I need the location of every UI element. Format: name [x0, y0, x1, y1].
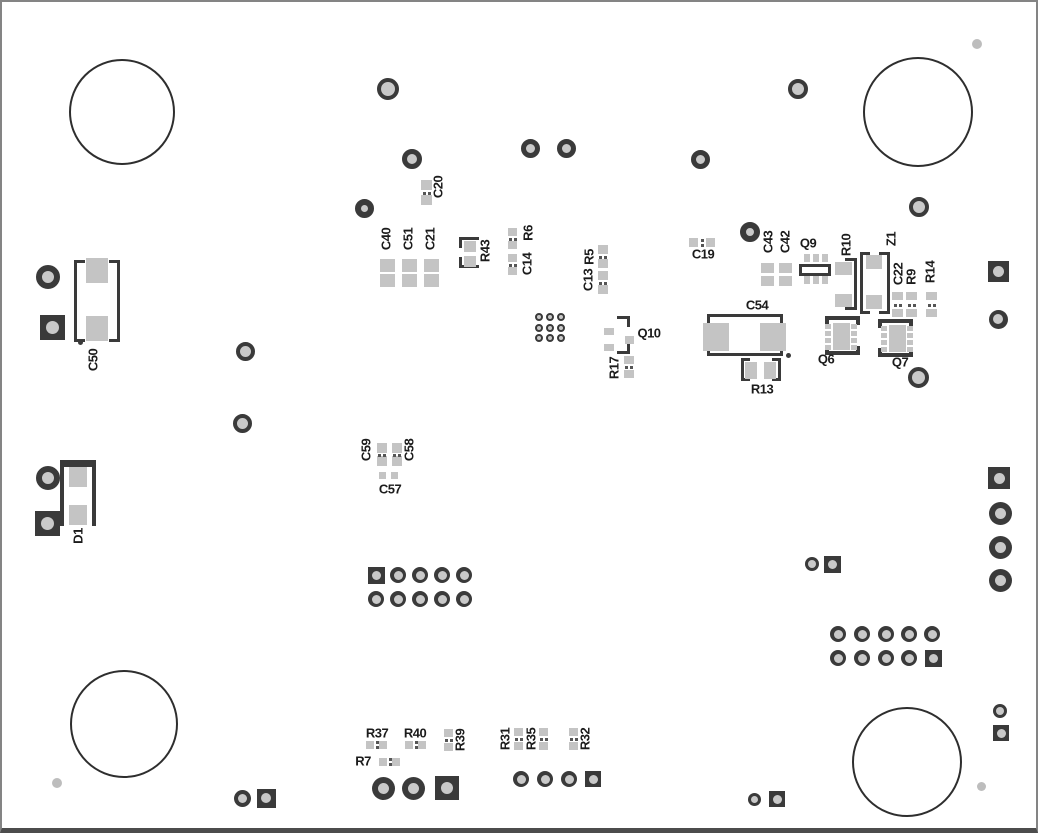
via [546, 324, 554, 332]
component-R17-pad [624, 370, 634, 378]
component-R7-pad [392, 758, 400, 766]
refdes-label-R35: R35 [525, 728, 538, 750]
R10-bracket [854, 258, 857, 310]
through-hole-pad [993, 725, 1009, 741]
Q7-bracket [878, 319, 913, 323]
R10-bracket [845, 258, 857, 261]
via [557, 334, 565, 342]
pad-hole [41, 517, 54, 530]
refdes-label-C59: C59 [360, 439, 373, 461]
through-hole-pad [748, 793, 761, 806]
pad-hole [808, 560, 816, 568]
component-R7-pad [379, 758, 387, 766]
fiducial-dot [972, 39, 982, 49]
mounting-hole [70, 670, 178, 778]
via [535, 324, 543, 332]
pad-hole [928, 630, 937, 639]
C54-bracket [707, 353, 783, 356]
component-R6-pad [508, 228, 517, 236]
refdes-label-R40: R40 [404, 727, 426, 740]
via [557, 313, 565, 321]
component-R9-pad [906, 309, 917, 317]
via [402, 149, 422, 169]
via [233, 414, 252, 433]
component-D1-pad [69, 467, 87, 487]
pad-hole [460, 595, 469, 604]
refdes-label-Q6: Q6 [818, 353, 834, 366]
refdes-label-R39: R39 [454, 729, 467, 751]
component-C43-pad [761, 276, 774, 286]
pad-hole [372, 571, 381, 580]
via [788, 79, 808, 99]
refdes-label-C57: C57 [379, 483, 401, 496]
pad-hole [565, 775, 574, 784]
through-hole-pad [412, 567, 428, 583]
component-D1-pad [69, 505, 87, 525]
component-R37-pad [379, 741, 387, 749]
pad-hole [993, 266, 1004, 277]
pad-hole [394, 595, 403, 604]
component-R6-pad [508, 241, 517, 249]
refdes-label-R14: R14 [924, 261, 937, 283]
mounting-hole [852, 707, 962, 817]
through-hole-pad [989, 502, 1012, 525]
component-R10-pad [835, 262, 852, 275]
paste-dot [389, 758, 392, 761]
paste-dot [376, 741, 379, 744]
component-R5-pad [598, 245, 608, 254]
paste-dot [378, 454, 381, 457]
via [691, 150, 710, 169]
pad-hole [828, 560, 837, 569]
component-C57-pad [379, 472, 386, 479]
polarity-dot-C50 [78, 340, 83, 345]
through-hole-pad [412, 591, 428, 607]
Q9-pad [822, 276, 828, 284]
via [557, 324, 565, 332]
paste-dot [894, 304, 897, 307]
Q9-pad [813, 254, 819, 262]
R43-bracket [459, 257, 462, 268]
pad-hole [997, 729, 1006, 738]
pad-hole [408, 783, 419, 794]
component-C22-pad [892, 309, 903, 317]
D1-outline [60, 460, 64, 526]
through-hole-pad [585, 771, 601, 787]
via [521, 139, 540, 158]
paste-dot [630, 366, 633, 369]
Q6-pad [851, 331, 857, 336]
refdes-label-C50: C50 [87, 349, 100, 371]
refdes-label-C19: C19 [692, 248, 714, 261]
pad-hole [238, 794, 247, 803]
pad-hole [541, 775, 550, 784]
through-hole-pad [824, 556, 841, 573]
through-hole-pad [924, 626, 940, 642]
through-hole-pad [390, 591, 406, 607]
component-R35-pad [539, 728, 548, 736]
refdes-label-R10: R10 [840, 234, 853, 256]
refdes-label-R37: R37 [366, 727, 388, 740]
paste-dot [509, 238, 512, 241]
through-hole-pad [989, 310, 1008, 329]
mounting-hole [863, 57, 973, 167]
component-C58-pad [392, 443, 402, 453]
Q7-pad [881, 326, 887, 331]
Q7-pad [907, 326, 913, 331]
through-hole-pad [988, 467, 1010, 489]
pad-hole [834, 654, 843, 663]
through-hole-pad [35, 511, 60, 536]
refdes-label-Q7: Q7 [892, 356, 908, 369]
component-C58-pad [392, 456, 402, 466]
paste-dot [625, 366, 628, 369]
C50-bracket [109, 339, 120, 342]
component-R13-pad [745, 362, 757, 379]
refdes-label-C20: C20 [432, 176, 445, 198]
component-C40-pad [380, 259, 395, 272]
paste-dot [514, 264, 517, 267]
refdes-label-R32: R32 [579, 728, 592, 750]
through-hole-pad [513, 771, 529, 787]
pad-hole [882, 654, 891, 663]
via [546, 334, 554, 342]
paste-dot [701, 239, 704, 242]
component-C50-pad [86, 258, 108, 283]
through-hole-pad [372, 777, 395, 800]
paste-dot [540, 738, 543, 741]
refdes-label-Q9: Q9 [800, 237, 816, 250]
paste-dot [415, 741, 418, 744]
pad-hole [994, 473, 1005, 484]
Q7-pad [907, 347, 913, 352]
refdes-label-R43: R43 [479, 240, 492, 262]
paste-dot [599, 256, 602, 259]
Q7-pad [907, 333, 913, 338]
Q7-pad [907, 340, 913, 345]
through-hole-pad [257, 789, 276, 808]
via [740, 222, 760, 242]
fiducial-dot [52, 778, 62, 788]
paste-dot [520, 738, 523, 741]
paste-dot [445, 739, 448, 742]
through-hole-pad [993, 704, 1007, 718]
pad-hole [834, 630, 843, 639]
refdes-label-C21: C21 [424, 228, 437, 250]
through-hole-pad [988, 261, 1009, 282]
paste-dot [933, 304, 936, 307]
Z1-bracket [879, 311, 890, 314]
Q9-pad [804, 254, 810, 262]
through-hole-pad [878, 650, 894, 666]
Q6-pad [825, 324, 831, 329]
through-hole-pad [901, 626, 917, 642]
polarity-dot-C54 [786, 353, 791, 358]
C50-bracket [117, 260, 120, 342]
through-hole-pad [434, 591, 450, 607]
via [535, 313, 543, 321]
R43-bracket [459, 237, 462, 248]
through-hole-pad [402, 777, 425, 800]
pad-hole [858, 654, 867, 663]
component-C59-pad [377, 443, 387, 453]
refdes-label-R9: R9 [905, 269, 918, 285]
refdes-label-C42: C42 [779, 231, 792, 253]
component-C14-pad [508, 254, 517, 262]
refdes-label-C51: C51 [402, 228, 415, 250]
refdes-label-C13: C13 [582, 269, 595, 291]
through-hole-pad [234, 790, 251, 807]
pad-hole [517, 775, 526, 784]
component-R35-pad [539, 742, 548, 750]
component-C42-pad [779, 263, 792, 273]
paste-dot [415, 746, 418, 749]
Q6-pad [825, 331, 831, 336]
paste-dot [604, 282, 607, 285]
refdes-label-R6: R6 [522, 225, 535, 241]
Q7-pad [881, 333, 887, 338]
component-R17-pad [624, 356, 634, 364]
component-C51-pad [402, 274, 417, 287]
paste-dot [389, 763, 392, 766]
refdes-label-Q10: Q10 [637, 327, 660, 340]
pad-hole [995, 575, 1006, 586]
pad-hole [261, 793, 271, 803]
component-C22-pad [892, 292, 903, 300]
Z1-bracket [860, 311, 870, 314]
pad-hole [441, 782, 453, 794]
pad-hole [751, 796, 758, 803]
pad-hole [372, 595, 381, 604]
component-R40-pad [405, 741, 413, 749]
component-R31-pad [514, 742, 523, 750]
through-hole-pad [830, 650, 846, 666]
component-R13-pad [764, 362, 776, 379]
Q9-pad [813, 276, 819, 284]
through-hole-pad [854, 650, 870, 666]
component-C57-pad [391, 472, 398, 479]
pad-hole [438, 571, 447, 580]
paste-dot [514, 238, 517, 241]
pad-hole [416, 595, 425, 604]
pad-hole [378, 783, 389, 794]
fiducial-dot [977, 782, 986, 791]
refdes-label-R7: R7 [355, 755, 371, 768]
pad-hole [394, 571, 403, 580]
via [546, 313, 554, 321]
pad-hole [995, 542, 1006, 553]
component-R9-pad [906, 292, 917, 300]
paste-dot [515, 738, 518, 741]
Q9-pad [804, 276, 810, 284]
mounting-hole [69, 59, 175, 165]
through-hole-pad [901, 650, 917, 666]
component-R5-pad [598, 259, 608, 268]
through-hole-pad [878, 626, 894, 642]
component-C54-pad [703, 323, 729, 351]
through-hole-pad [456, 591, 472, 607]
refdes-label-D1: D1 [72, 528, 85, 544]
via [355, 199, 374, 218]
Q6-body [833, 323, 850, 350]
via [908, 367, 929, 388]
component-C54-pad [760, 323, 786, 351]
component-C21-pad [424, 259, 439, 272]
R10-bracket [845, 307, 857, 310]
pad-hole [996, 707, 1004, 715]
D1-outline [92, 460, 96, 526]
paste-dot [604, 256, 607, 259]
via [377, 78, 399, 100]
refdes-label-C58: C58 [403, 439, 416, 461]
C50-bracket [74, 260, 77, 342]
Q6-pad [825, 345, 831, 350]
Q6-pad [851, 324, 857, 329]
through-hole-pad [40, 315, 65, 340]
component-C13-pad [598, 271, 608, 280]
paste-dot [908, 304, 911, 307]
via [535, 334, 543, 342]
Q6-pad [851, 338, 857, 343]
pad-hole [773, 795, 782, 804]
Z1-bracket [860, 252, 863, 314]
C50-bracket [74, 260, 85, 263]
pad-hole [905, 654, 914, 663]
refdes-label-R17: R17 [608, 357, 621, 379]
Q6-bracket [825, 316, 860, 320]
through-hole-pad [435, 776, 459, 800]
pad-hole [995, 508, 1006, 519]
pad-hole [589, 775, 598, 784]
component-R31-pad [514, 728, 523, 736]
refdes-label-C54: C54 [746, 299, 768, 312]
component-R14-pad [926, 292, 937, 300]
component-R43-pad [464, 256, 476, 267]
component-R37-pad [366, 741, 374, 749]
via [909, 197, 929, 217]
refdes-label-Z1: Z1 [885, 232, 898, 246]
Q10-corner [627, 343, 630, 354]
component-R43-pad [464, 241, 476, 252]
C54-bracket [707, 314, 783, 317]
D1-outline [60, 460, 96, 467]
Q9-pad [822, 254, 828, 262]
pad-hole [416, 571, 425, 580]
paste-dot [423, 192, 426, 195]
R43-bracket [459, 237, 479, 240]
paste-dot [545, 738, 548, 741]
component-C59-pad [377, 456, 387, 466]
Q10-corner [627, 316, 630, 327]
Q6-pad [825, 338, 831, 343]
pad-hole [858, 630, 867, 639]
paste-dot [928, 304, 931, 307]
via [557, 139, 576, 158]
component-R40-pad [418, 741, 426, 749]
pad-hole [438, 595, 447, 604]
R13-bracket [741, 358, 750, 361]
through-hole-pad [390, 567, 406, 583]
through-hole-pad [925, 650, 942, 667]
paste-dot [570, 738, 573, 741]
pad-hole [993, 314, 1003, 324]
component-Z1-pad [866, 295, 882, 309]
component-R14-pad [926, 309, 937, 317]
pad-hole [929, 654, 938, 663]
Q10-pad [604, 328, 614, 335]
component-C43-pad [761, 263, 774, 273]
paste-dot [913, 304, 916, 307]
through-hole-pad [989, 536, 1012, 559]
Q10-pad [625, 336, 634, 344]
Q7-pad [881, 347, 887, 352]
component-Z1-pad [866, 255, 882, 269]
refdes-label-R13: R13 [751, 383, 773, 396]
component-C13-pad [598, 285, 608, 294]
via [36, 466, 60, 490]
paste-dot [599, 282, 602, 285]
through-hole-pad [830, 626, 846, 642]
paste-dot [393, 454, 396, 457]
through-hole-pad [561, 771, 577, 787]
through-hole-pad [989, 569, 1012, 592]
pad-hole [460, 571, 469, 580]
Q7-body [889, 325, 906, 352]
through-hole-pad [434, 567, 450, 583]
Q10-pad [604, 344, 614, 351]
C50-bracket [109, 260, 120, 263]
refdes-label-R31: R31 [499, 728, 512, 750]
Q7-pad [881, 340, 887, 345]
through-hole-pad [805, 557, 819, 571]
through-hole-pad [537, 771, 553, 787]
refdes-label-C40: C40 [380, 228, 393, 250]
refdes-label-C14: C14 [521, 253, 534, 275]
paste-dot [376, 746, 379, 749]
component-C50-pad [86, 316, 108, 341]
Q6-pad [851, 345, 857, 350]
via [36, 265, 60, 289]
pcb-assembly-drawing: C20C40C51C21R43R6C14R5C13C19C43C42Q9R10Z… [0, 0, 1038, 833]
component-C40-pad [380, 274, 395, 287]
R13-bracket [772, 358, 781, 361]
paste-dot [899, 304, 902, 307]
pad-hole [905, 630, 914, 639]
component-R10-pad [835, 294, 852, 307]
through-hole-pad [769, 791, 785, 807]
component-C42-pad [779, 276, 792, 286]
via [236, 342, 255, 361]
pad-hole [882, 630, 891, 639]
through-hole-pad [368, 567, 385, 584]
through-hole-pad [368, 591, 384, 607]
Q9-body-outline [799, 264, 831, 276]
component-C14-pad [508, 267, 517, 275]
paste-dot [383, 454, 386, 457]
through-hole-pad [456, 567, 472, 583]
pad-hole [46, 321, 59, 334]
paste-dot [509, 264, 512, 267]
through-hole-pad [854, 626, 870, 642]
refdes-label-C43: C43 [762, 231, 775, 253]
component-C51-pad [402, 259, 417, 272]
component-C21-pad [424, 274, 439, 287]
refdes-label-R5: R5 [583, 249, 596, 265]
